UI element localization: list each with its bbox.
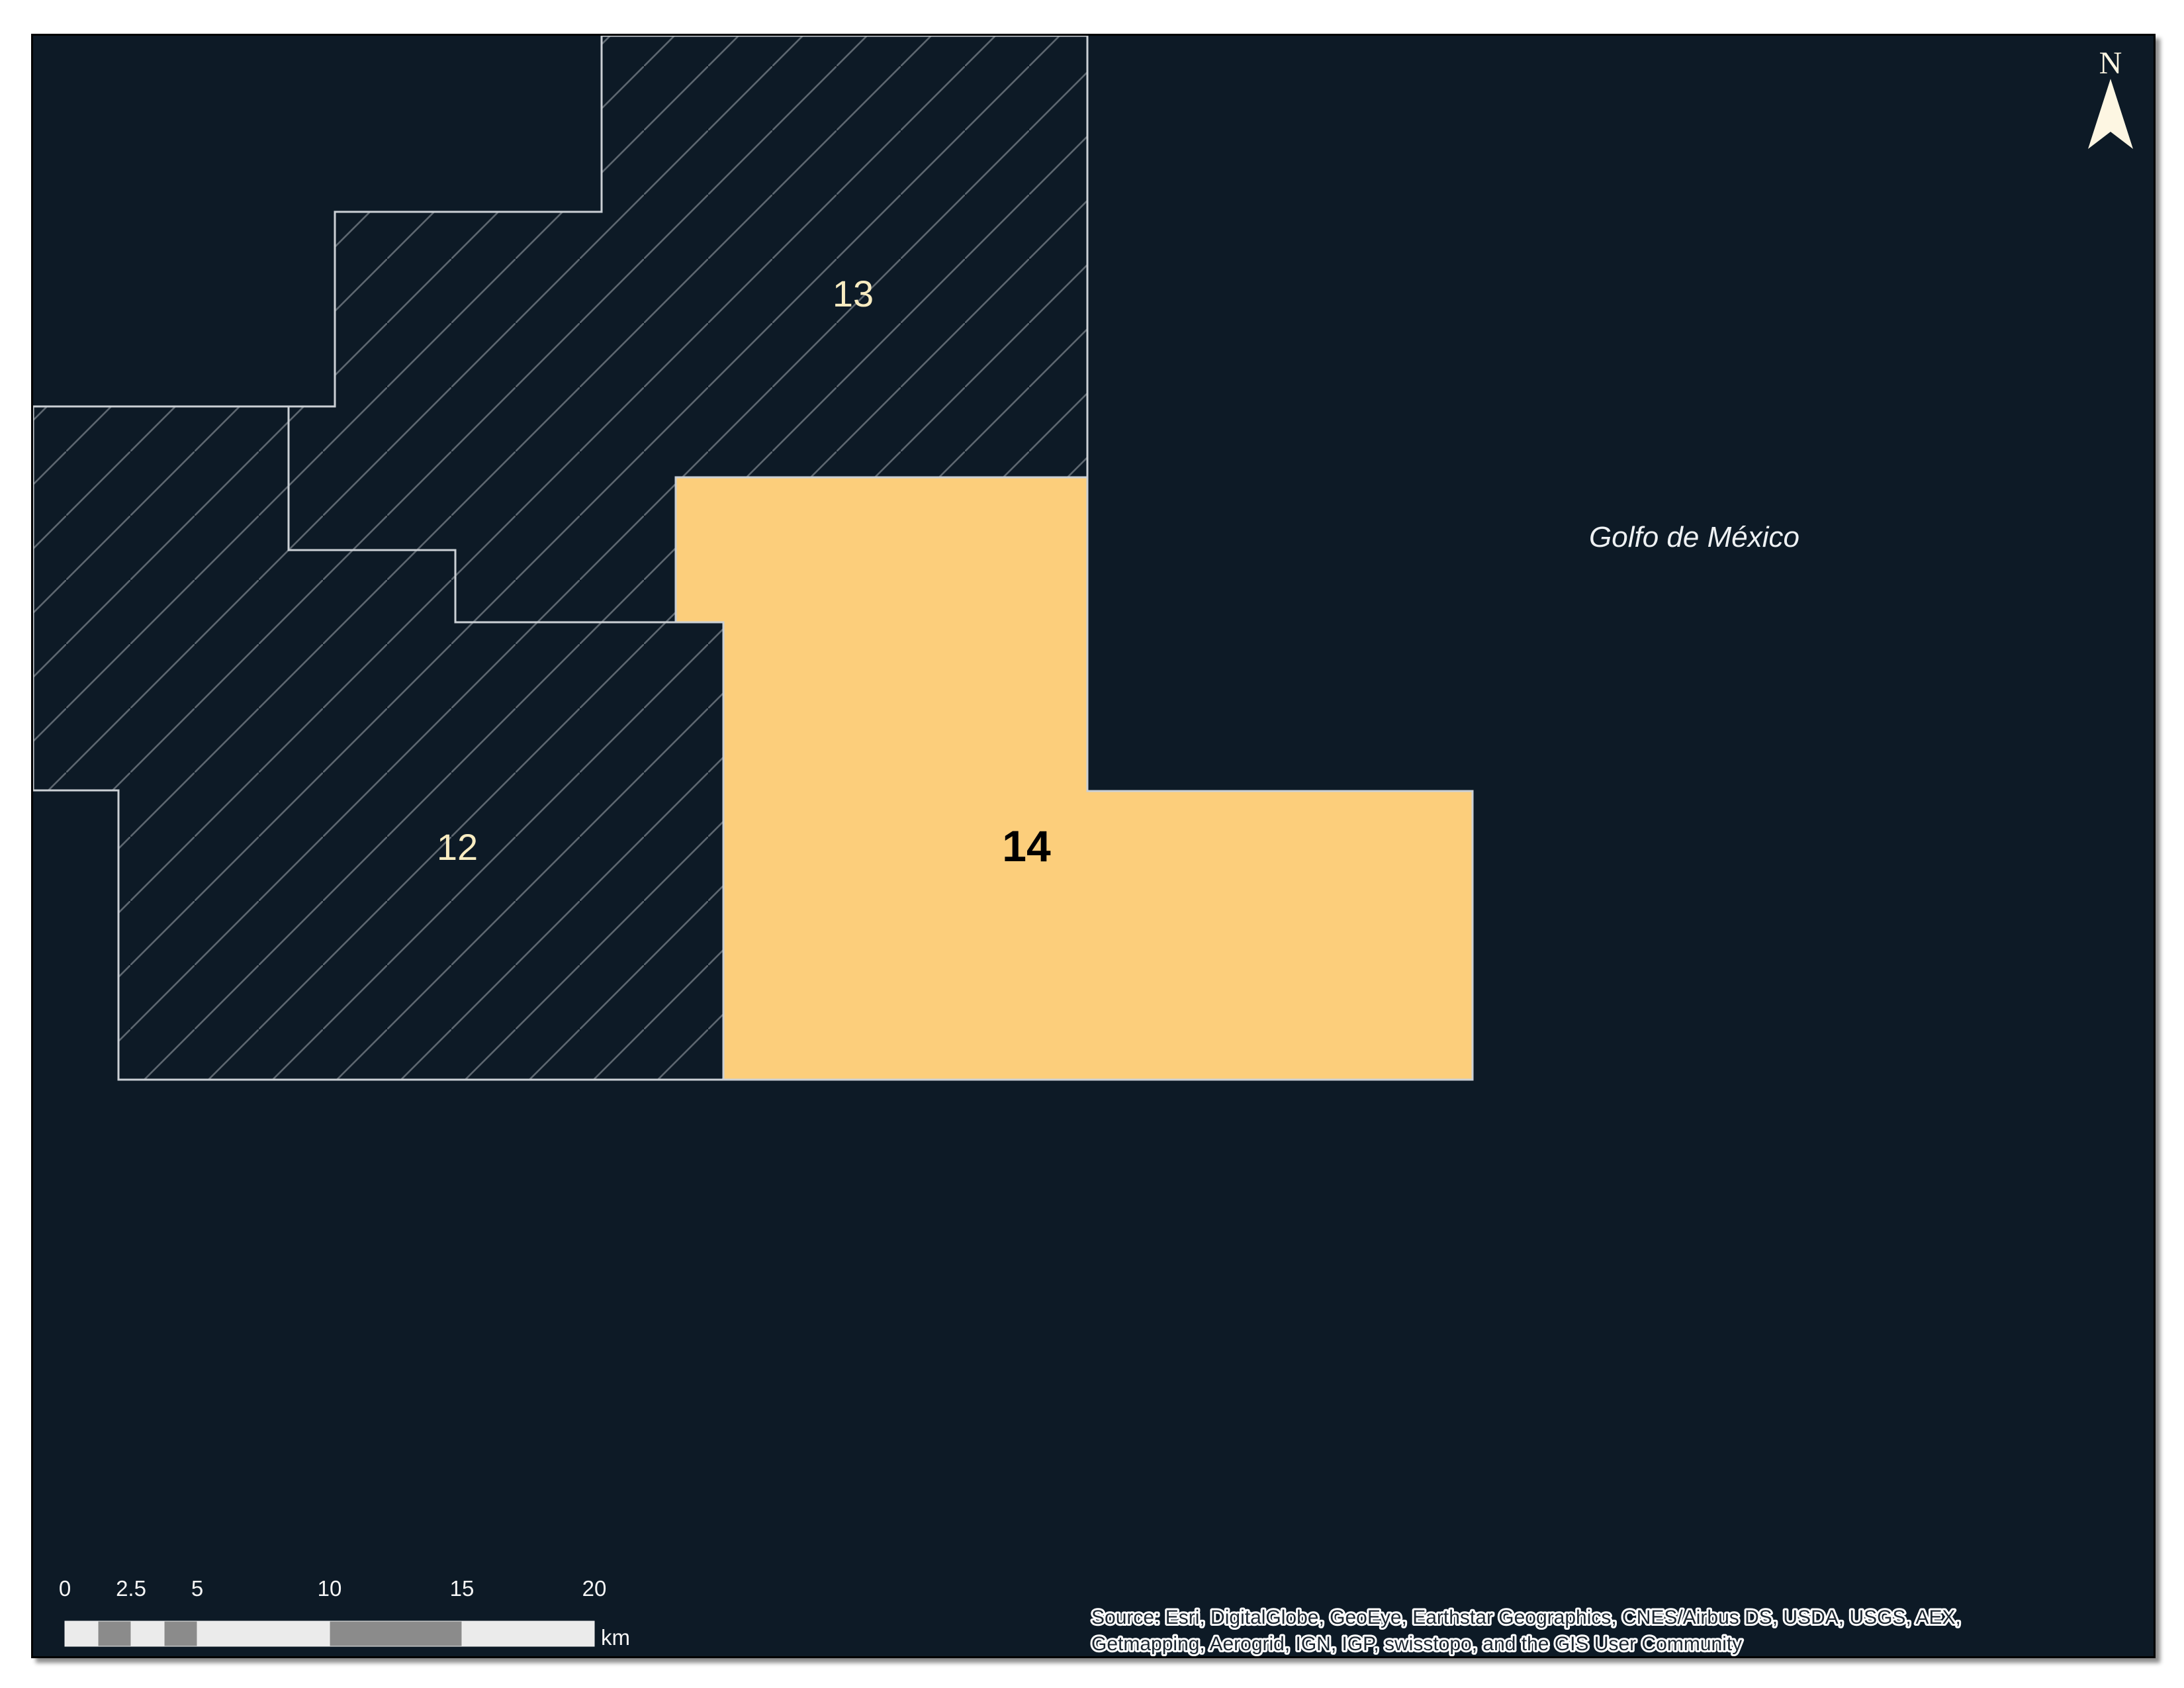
scale-bar-segment xyxy=(462,1621,594,1646)
map-document-page: 13 12 14 Golfo de México N 0 2.5 xyxy=(0,0,2184,1688)
attribution-line-1: Source: Esri, DigitalGlobe, GeoEye, Eart… xyxy=(1091,1607,1961,1628)
scale-tick-0: 0 xyxy=(59,1576,71,1601)
scale-tick-5: 20 xyxy=(582,1576,607,1601)
scale-bar-segment xyxy=(131,1621,164,1646)
scale-bar-segment xyxy=(197,1621,330,1646)
attribution-line-2: Getmapping, Aerogrid, IGN, IGP, swisstop… xyxy=(1091,1633,1742,1655)
scale-tick-1: 2.5 xyxy=(116,1576,146,1601)
map-canvas: 13 12 14 Golfo de México N 0 2.5 xyxy=(31,34,2156,1658)
scale-bar: 0 2.5 5 10 15 20 km xyxy=(59,1576,630,1650)
region-13-label: 13 xyxy=(833,273,874,314)
scale-bar-segment xyxy=(98,1621,131,1646)
north-arrow: N xyxy=(2088,46,2133,149)
water-body-label: Golfo de México xyxy=(1589,521,1799,553)
map-svg: 13 12 14 Golfo de México N 0 2.5 xyxy=(33,36,2154,1656)
scale-tick-2: 5 xyxy=(191,1576,203,1601)
region-12-label: 12 xyxy=(437,826,478,868)
region-14-label: 14 xyxy=(1002,821,1051,870)
scale-bar-segment xyxy=(330,1621,462,1646)
scale-unit-label: km xyxy=(601,1625,630,1650)
scale-bar-segment xyxy=(65,1621,98,1646)
map-attribution: Source: Esri, DigitalGlobe, GeoEye, Eart… xyxy=(1091,1607,1961,1655)
scale-tick-3: 10 xyxy=(318,1576,342,1601)
scale-tick-4: 15 xyxy=(450,1576,475,1601)
region-14-polygon xyxy=(676,477,1473,1080)
scale-bar-segment xyxy=(164,1621,197,1646)
north-arrow-label: N xyxy=(2099,46,2122,81)
north-arrow-icon xyxy=(2088,79,2133,149)
